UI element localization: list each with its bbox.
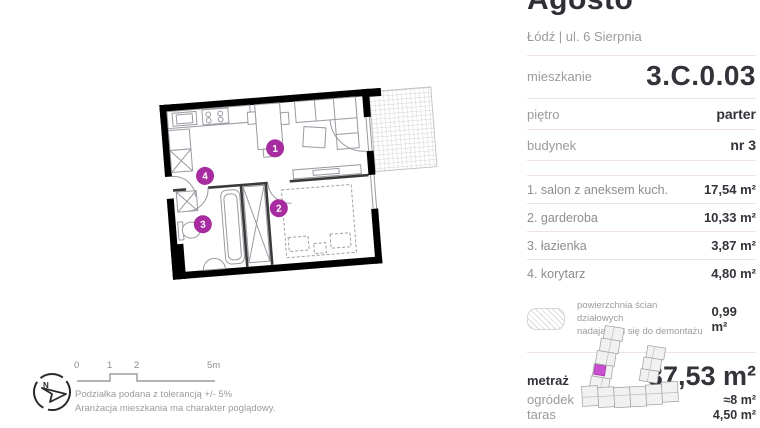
info-row-pietro: piętro parter [527,99,756,130]
scale-tick-2: 2 [134,360,139,371]
info-row-mieszkanie: mieszkanie 3.C.0.03 [527,56,756,99]
room-row-salon: 1. salon z aneksem kuch. 17,54 m² [527,176,756,204]
apartment-listing-page: 1 2 3 4 Agosto Łódź | ul. 6 Sierpnia mie… [0,0,760,428]
room-area: 10,33 m² [704,210,756,225]
scale-note-tolerance: Podziałka podana z tolerancją +/- 5% [75,388,275,402]
summary-label: metraż [527,373,569,388]
info-row-budynek: budynek nr 3 [527,130,756,161]
room-area: 17,54 m² [704,182,756,197]
room-row-korytarz: 4. korytarz 4,80 m² [527,260,756,287]
scale-tick-1: 1 [107,360,112,371]
demolishable-area: 0,99 m² [712,304,757,334]
compass-north-label: N [43,381,49,390]
hatch-swatch-icon [527,308,565,330]
scale-tick-5m: 5m [207,360,220,371]
terrace-area: 4,50 m² [713,408,756,422]
kitchen-furniture [167,105,255,172]
page-title: Agosto [527,0,756,17]
room-area: 3,87 m² [711,238,756,253]
room-label: 1. salon z aneksem kuch. [527,183,668,197]
scale-note-arrangement: Aranżacja mieszkania ma charakter pogląd… [75,402,275,416]
site-map [578,322,693,422]
room-row-garderoba: 2. garderoba 10,33 m² [527,204,756,232]
room-label: 4. korytarz [527,267,585,281]
info-label: budynek [527,138,576,153]
garden-area: ≈8 m² [723,393,756,407]
sofa-set [295,97,360,153]
building-value: nr 3 [730,137,756,153]
location-subtitle: Łódź | ul. 6 Sierpnia [527,29,756,44]
floor-plan: 1 2 3 4 [156,84,466,294]
floor-value: parter [716,106,756,122]
room-label: 2. garderoba [527,211,598,225]
info-label: piętro [527,107,560,122]
scale-bar: 0 1 2 5m [70,358,230,386]
room-label: 3. łazienka [527,239,587,253]
apartment-number: 3.C.0.03 [646,60,756,92]
bathroom-fixtures [175,187,245,272]
bed-dashed [281,184,356,257]
room-row-lazienka: 3. łazienka 3,87 m² [527,232,756,260]
room-list: 1. salon z aneksem kuch. 17,54 m² 2. gar… [527,175,756,287]
balcony-terrace [369,87,437,172]
summary-label: ogródek [527,392,574,407]
summary-label: taras [527,407,556,422]
room-area: 4,80 m² [711,266,756,281]
scale-tick-0: 0 [74,360,79,371]
info-label: mieszkanie [527,69,592,84]
highlighted-unit [594,364,606,376]
scale-notes: Podziałka podana z tolerancją +/- 5% Ara… [75,388,275,417]
